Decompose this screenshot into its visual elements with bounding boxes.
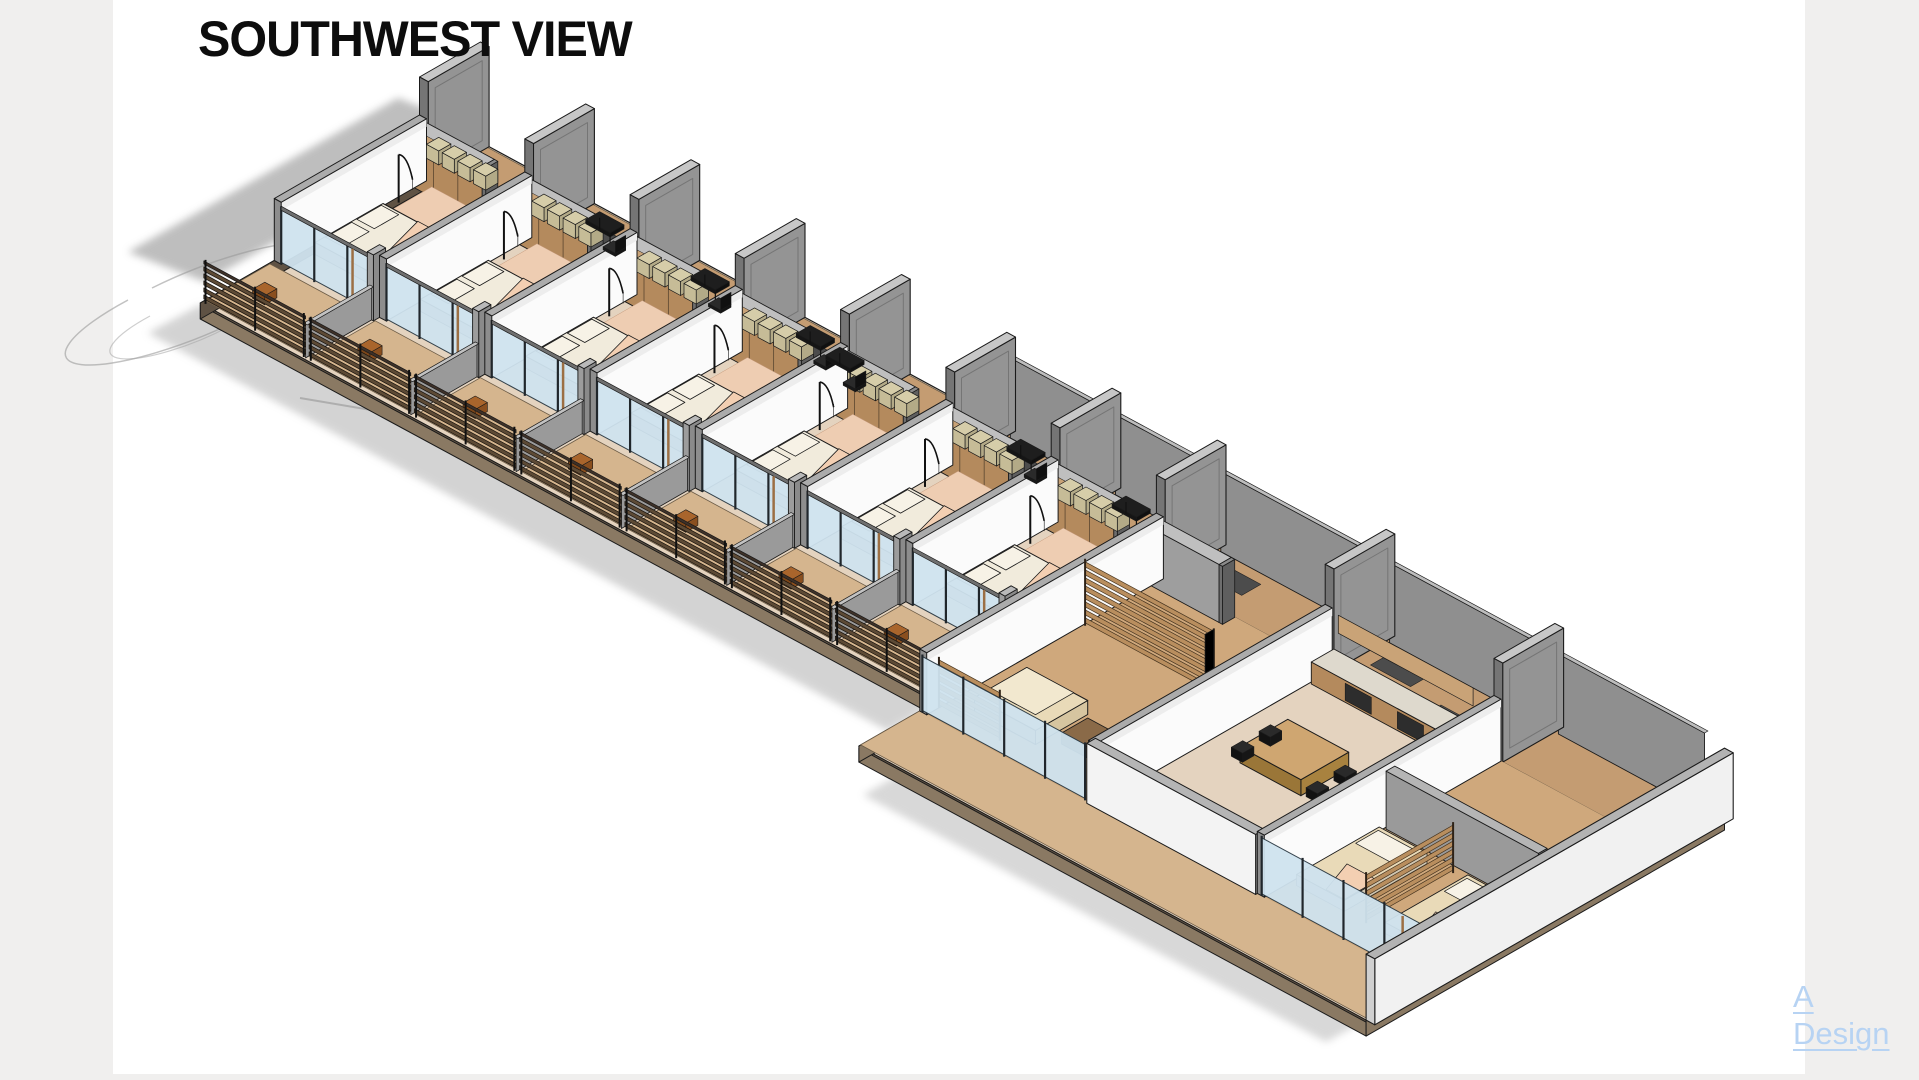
watermark-link[interactable]: A Design xyxy=(1793,978,1890,1052)
view-title: SOUTHWEST VIEW xyxy=(198,10,632,68)
building-layer xyxy=(200,42,1733,1036)
watermark-line1: A xyxy=(1793,978,1890,1015)
isometric-scene-svg xyxy=(0,0,1919,1080)
axonometric-rendering xyxy=(0,0,1919,1080)
watermark-line2: Design xyxy=(1793,1015,1890,1052)
